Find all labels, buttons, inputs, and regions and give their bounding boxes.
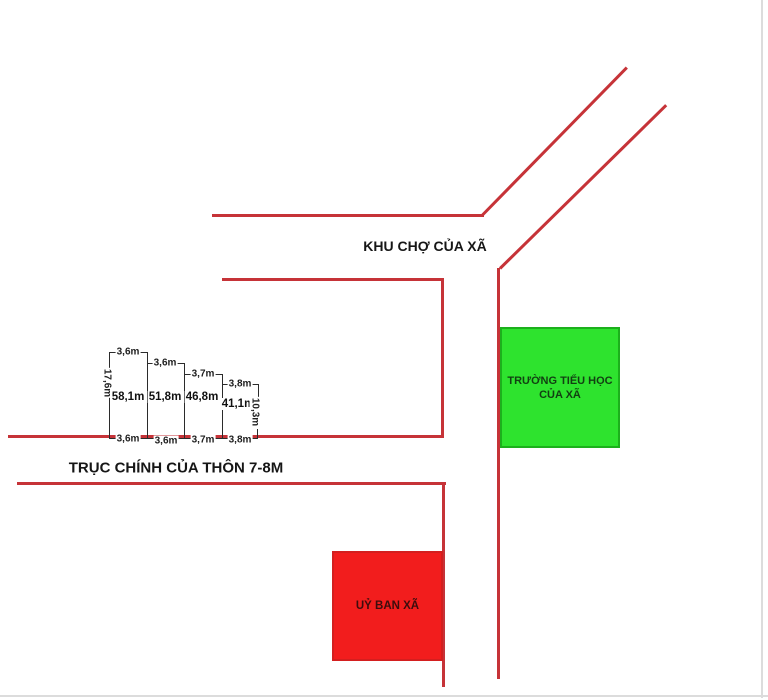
plot3-area-label: 46,8m	[185, 391, 220, 403]
plot2-top-width-label: 3,6m	[153, 358, 178, 369]
plot-divider-line-5-top	[258, 384, 259, 397]
plot2-area-label: 51,8m	[148, 391, 183, 403]
main-road-label: TRỤC CHÍNH CỦA THÔN 7-8M	[69, 460, 283, 477]
plot3-bottom-width-label: 3,7m	[191, 435, 216, 446]
road-top-horizontal	[212, 214, 484, 217]
right-edge-line	[761, 0, 763, 698]
road-vertical-mid	[441, 278, 444, 438]
right-depth-label: 10,3m	[250, 397, 261, 427]
committee-building-label: UỶ BAN XÃ	[356, 600, 419, 613]
plot-divider-line-5-bottom-tick	[257, 429, 258, 438]
plot1-bottom-width-label: 3,6m	[116, 434, 141, 445]
school-label-line2: CỦA XÃ	[507, 388, 612, 402]
plot2-bottom-width-label: 3,6m	[154, 436, 179, 447]
site-plan-canvas: KHU CHỢ CỦA XÃ TRỤC CHÍNH CỦA THÔN 7-8M …	[0, 0, 768, 700]
bottom-edge-line	[0, 695, 768, 697]
road-lower-horizontal	[17, 482, 446, 485]
road-branch-upper-diagonal	[481, 67, 628, 217]
road-mid-horizontal	[222, 278, 444, 281]
plot4-bottom-width-label: 3,8m	[228, 435, 253, 446]
road-branch-lower-diagonal	[499, 104, 667, 269]
plot1-top-width-label: 3,6m	[116, 347, 141, 358]
plot3-top-width-label: 3,7m	[191, 369, 216, 380]
committee-building: UỶ BAN XÃ	[332, 551, 443, 661]
school-label-line1: TRƯỜNG TIỂU HỌC	[507, 374, 612, 388]
school-building-label: TRƯỜNG TIỂU HỌC CỦA XÃ	[507, 374, 612, 402]
plot1-area-label: 58,1m	[111, 391, 146, 403]
market-area-label: KHU CHỢ CỦA XÃ	[363, 238, 486, 254]
plot4-top-width-label: 3,8m	[228, 379, 253, 390]
left-depth-label: 17,6m	[102, 368, 113, 398]
school-building: TRƯỜNG TIỂU HỌC CỦA XÃ	[500, 327, 620, 448]
